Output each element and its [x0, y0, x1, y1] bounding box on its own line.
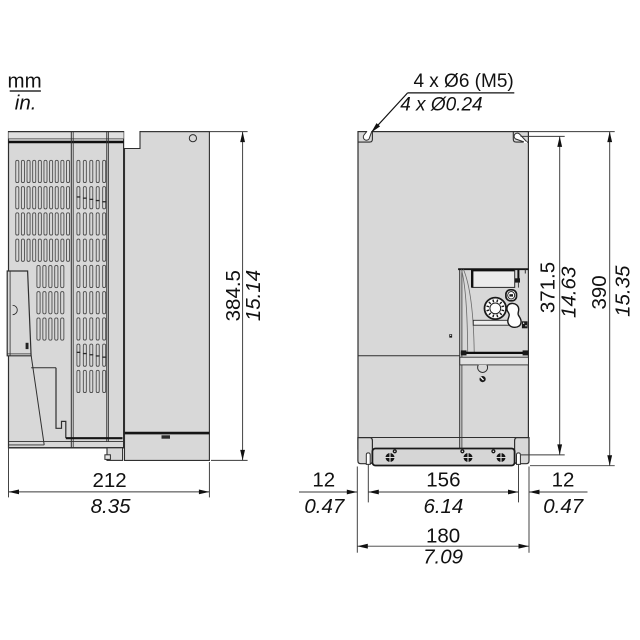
svg-text:in.: in. — [15, 91, 37, 114]
svg-text:180: 180 — [426, 525, 460, 548]
svg-text:15.14: 15.14 — [242, 270, 265, 321]
svg-text:156: 156 — [426, 469, 460, 492]
svg-text:390: 390 — [588, 275, 611, 309]
svg-text:7.09: 7.09 — [423, 546, 463, 569]
svg-text:4 x Ø0.24: 4 x Ø0.24 — [400, 95, 482, 116]
svg-text:4 x Ø6 (M5): 4 x Ø6 (M5) — [413, 71, 513, 92]
svg-text:mm: mm — [8, 70, 42, 93]
svg-text:371.5: 371.5 — [537, 262, 560, 313]
svg-text:14.63: 14.63 — [557, 266, 580, 318]
svg-text:212: 212 — [92, 469, 126, 492]
svg-text:15.35: 15.35 — [612, 265, 635, 317]
svg-text:6.14: 6.14 — [423, 495, 463, 518]
svg-text:12: 12 — [552, 469, 575, 492]
svg-text:0.47: 0.47 — [543, 495, 584, 518]
svg-text:8.35: 8.35 — [91, 495, 131, 518]
svg-text:0.47: 0.47 — [304, 495, 345, 518]
svg-text:12: 12 — [312, 469, 335, 492]
